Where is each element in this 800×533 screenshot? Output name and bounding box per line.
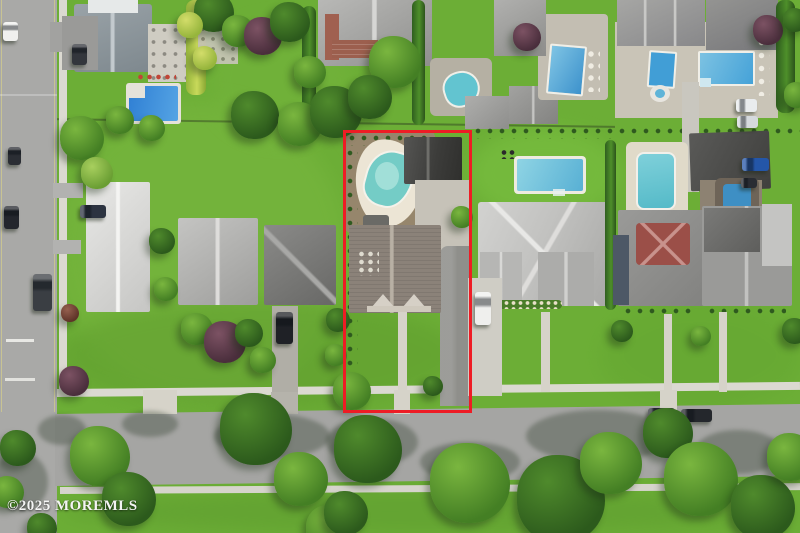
tree-canopy: [664, 442, 738, 516]
tree-canopy: [59, 366, 89, 396]
tree-canopy: [580, 432, 642, 494]
tree-canopy: [731, 475, 795, 533]
tree-canopy: [334, 415, 402, 483]
tree-canopy: [193, 46, 217, 70]
tree-canopy: [250, 347, 276, 373]
tree-canopy: [753, 15, 783, 45]
tree-canopy: [611, 320, 633, 342]
tree-canopy: [430, 443, 510, 523]
tree-canopy: [220, 393, 292, 465]
tree-canopy: [177, 12, 203, 38]
tree-canopy: [270, 2, 310, 42]
tree-canopy: [782, 318, 800, 344]
tree-canopy: [294, 56, 326, 88]
tree-canopy: [324, 491, 368, 533]
tree-canopy: [691, 326, 711, 346]
tree-canopy: [235, 319, 263, 347]
tree-canopy: [139, 115, 165, 141]
tree-canopy: [27, 513, 57, 533]
property-outline: [343, 130, 472, 413]
tree-canopy: [783, 8, 800, 32]
tree-canopy: [60, 116, 104, 160]
tree-canopy: [149, 228, 175, 254]
tree-canopy: [231, 91, 279, 139]
tree-canopy: [784, 82, 800, 108]
aerial-photo-stage: ©2025 MOREMLS: [0, 0, 800, 533]
tree-canopy: [0, 430, 36, 466]
tree-canopy: [274, 452, 328, 506]
tree-canopy: [513, 23, 541, 51]
tree-canopy: [81, 157, 113, 189]
tree-canopy: [348, 75, 392, 119]
tree-canopy: [767, 433, 800, 481]
tree-canopy: [61, 304, 79, 322]
tree-canopy: [106, 106, 134, 134]
tree-canopy: [154, 277, 178, 301]
watermark: ©2025 MOREMLS: [7, 498, 138, 515]
